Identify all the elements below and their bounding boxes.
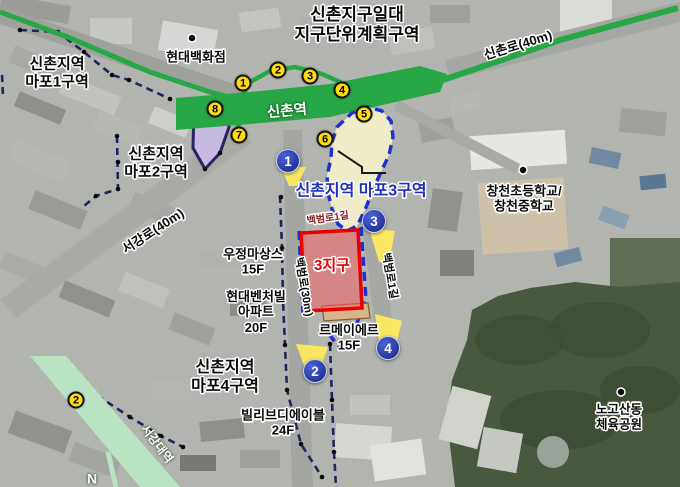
hyundai-dept-dot — [188, 34, 196, 42]
place-label-changcheon-schools: 창천초등학교/ 창천중학교 — [486, 184, 561, 215]
nogosan-park-dot — [617, 388, 625, 396]
satellite-map: 신촌지구일대 지구단위계획구역 신촌지역 마포1구역 현대백화점 신촌지역 마포… — [0, 0, 680, 487]
zone-label-mapo3: 신촌지역 마포3구역 — [295, 183, 426, 202]
zone-label-mapo2: 신촌지역 마포2구역 — [124, 145, 188, 180]
exit-marker-8: 8 — [207, 101, 224, 118]
exit-marker-5: 5 — [356, 106, 373, 123]
view-marker-3: 3 — [362, 209, 386, 233]
view-marker-1: 1 — [276, 149, 300, 173]
yellow-marker-2-southwest: 2 — [68, 392, 85, 409]
view-marker-2: 2 — [303, 359, 327, 383]
zone-label-mapo4: 신촌지역 마포4구역 — [191, 359, 259, 397]
exit-marker-3: 3 — [302, 68, 319, 85]
place-label-hyundai-venture: 현대벤처빌 아파트 20F — [226, 289, 286, 335]
place-label-woojung: 우정마상스 15F — [223, 247, 283, 278]
exit-marker-2: 2 — [270, 62, 287, 79]
exit-marker-7: 7 — [231, 127, 248, 144]
changcheon-schools-dot — [519, 166, 527, 174]
zone-label-mapo1: 신촌지역 마포1구역 — [25, 55, 89, 90]
park-area — [438, 282, 680, 487]
place-label-villive: 빌리브디에이블 24F — [241, 408, 325, 439]
map-title: 신촌지구일대 지구단위계획구역 — [294, 5, 419, 45]
exit-marker-4: 4 — [334, 82, 351, 99]
exit-marker-1: 1 — [235, 75, 252, 92]
place-label-nogosan-park: 노고산동 체육공원 — [596, 402, 642, 432]
view-marker-4: 4 — [376, 336, 400, 360]
station-label-sinchon: 신촌역 — [266, 102, 307, 123]
exit-marker-6: 6 — [317, 131, 334, 148]
place-label-lemeilleur: 르메이에르 15F — [319, 323, 379, 354]
map-overlay-svg — [0, 0, 680, 487]
compass-north: N — [87, 471, 97, 487]
place-label-hyundai-dept: 현대백화점 — [166, 49, 226, 64]
district3-label: 3지구 — [314, 257, 350, 275]
